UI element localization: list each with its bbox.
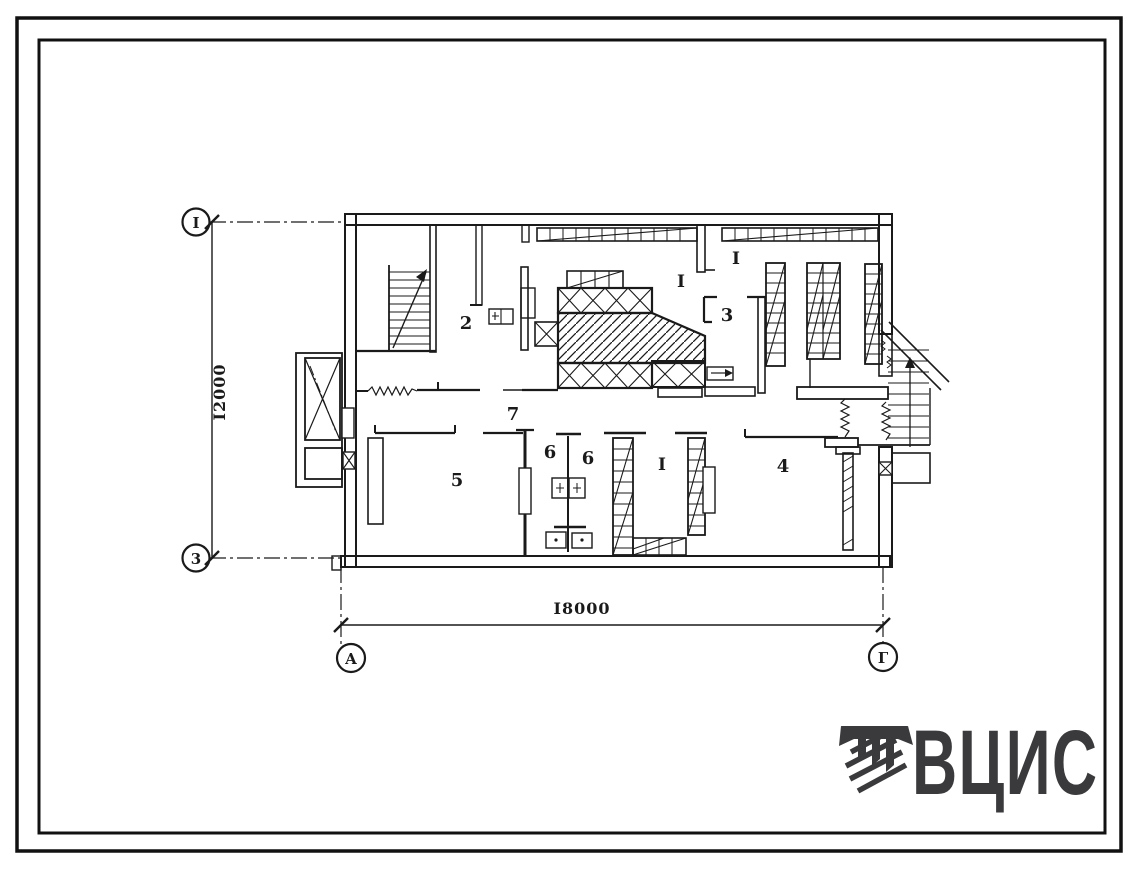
lintel-left — [658, 388, 702, 397]
bottom-hatch-box — [633, 538, 686, 555]
wall-opening-box — [342, 408, 354, 438]
room3-right-wall — [758, 297, 765, 393]
room5-duct — [368, 438, 383, 524]
room-label-i-upper-right: I — [732, 249, 740, 269]
annex-outline — [296, 353, 342, 487]
room-label-6a: 6 — [544, 442, 557, 463]
dimension-label-vertical: I2000 — [210, 363, 229, 420]
corridor-walls — [356, 382, 888, 399]
room2-partitions — [470, 225, 513, 324]
wall-stub-center — [697, 225, 705, 272]
ceiling-beam-strips — [522, 225, 878, 272]
dimension-label-horizontal: I8000 — [553, 599, 610, 618]
building-plan — [296, 214, 949, 570]
door-leaf — [703, 467, 715, 513]
room-label-6b: 6 — [582, 448, 595, 469]
room-label-5: 5 — [451, 470, 464, 491]
wall-top — [345, 214, 892, 225]
floor-plan-drawing: I 3 А Г I2000 I8000 — [0, 0, 1139, 869]
room3-bracket — [704, 297, 717, 322]
shaft-column-right — [675, 433, 715, 535]
axis-label-col-right: Г — [878, 649, 889, 667]
wall525-pilaster — [519, 468, 531, 514]
stair-right-wall — [430, 225, 436, 352]
corridor-wall-right — [797, 387, 888, 399]
stair-arrow — [393, 272, 426, 348]
logo-text: ВЦИС — [912, 711, 1098, 814]
stair-treads — [389, 272, 430, 344]
axis-label-row-bottom: 3 — [191, 550, 201, 568]
rack-columns — [766, 263, 882, 388]
room-label-7: 7 — [507, 404, 520, 425]
elevator-cross — [305, 358, 340, 440]
core-wall-left — [521, 267, 528, 350]
extension-lines — [210, 222, 883, 646]
central-shaft-core — [521, 267, 766, 397]
expansion-zigzag-b — [882, 402, 890, 440]
room-label-i-upper-left: I — [677, 272, 685, 292]
logo-icon — [839, 726, 913, 791]
blueprint-page: I 3 А Г I2000 I8000 — [0, 0, 1139, 869]
axis-grid — [183, 209, 898, 673]
wall-stub-small — [522, 225, 529, 242]
elevator-annex — [296, 353, 355, 487]
envelope-walls — [332, 214, 892, 570]
axis-label-row-top: I — [192, 214, 199, 232]
logo: ВЦИС — [839, 711, 1098, 814]
lower-rooms — [368, 425, 860, 556]
room4-wall-hatch — [843, 456, 853, 545]
expansion-zigzag-left — [368, 387, 417, 395]
porch — [892, 453, 930, 483]
room-label-3: 3 — [721, 305, 734, 326]
wall-left — [345, 214, 356, 567]
left-staircase — [357, 225, 436, 352]
room-labels: 2 3 I I 7 5 6 6 I 4 — [451, 249, 790, 491]
expansion-zigzag-a — [841, 399, 849, 437]
right-staircase — [881, 322, 949, 447]
axis-label-col-left: А — [345, 650, 358, 668]
lintel-right — [705, 387, 755, 396]
room-label-2: 2 — [460, 313, 473, 334]
room-label-i-lower: I — [658, 455, 666, 475]
shaft-column-left — [604, 433, 646, 555]
annex-lower-bay — [305, 448, 342, 479]
wall-bottom — [341, 556, 890, 567]
sink-glyph — [492, 309, 501, 324]
room-label-4: 4 — [777, 456, 790, 477]
